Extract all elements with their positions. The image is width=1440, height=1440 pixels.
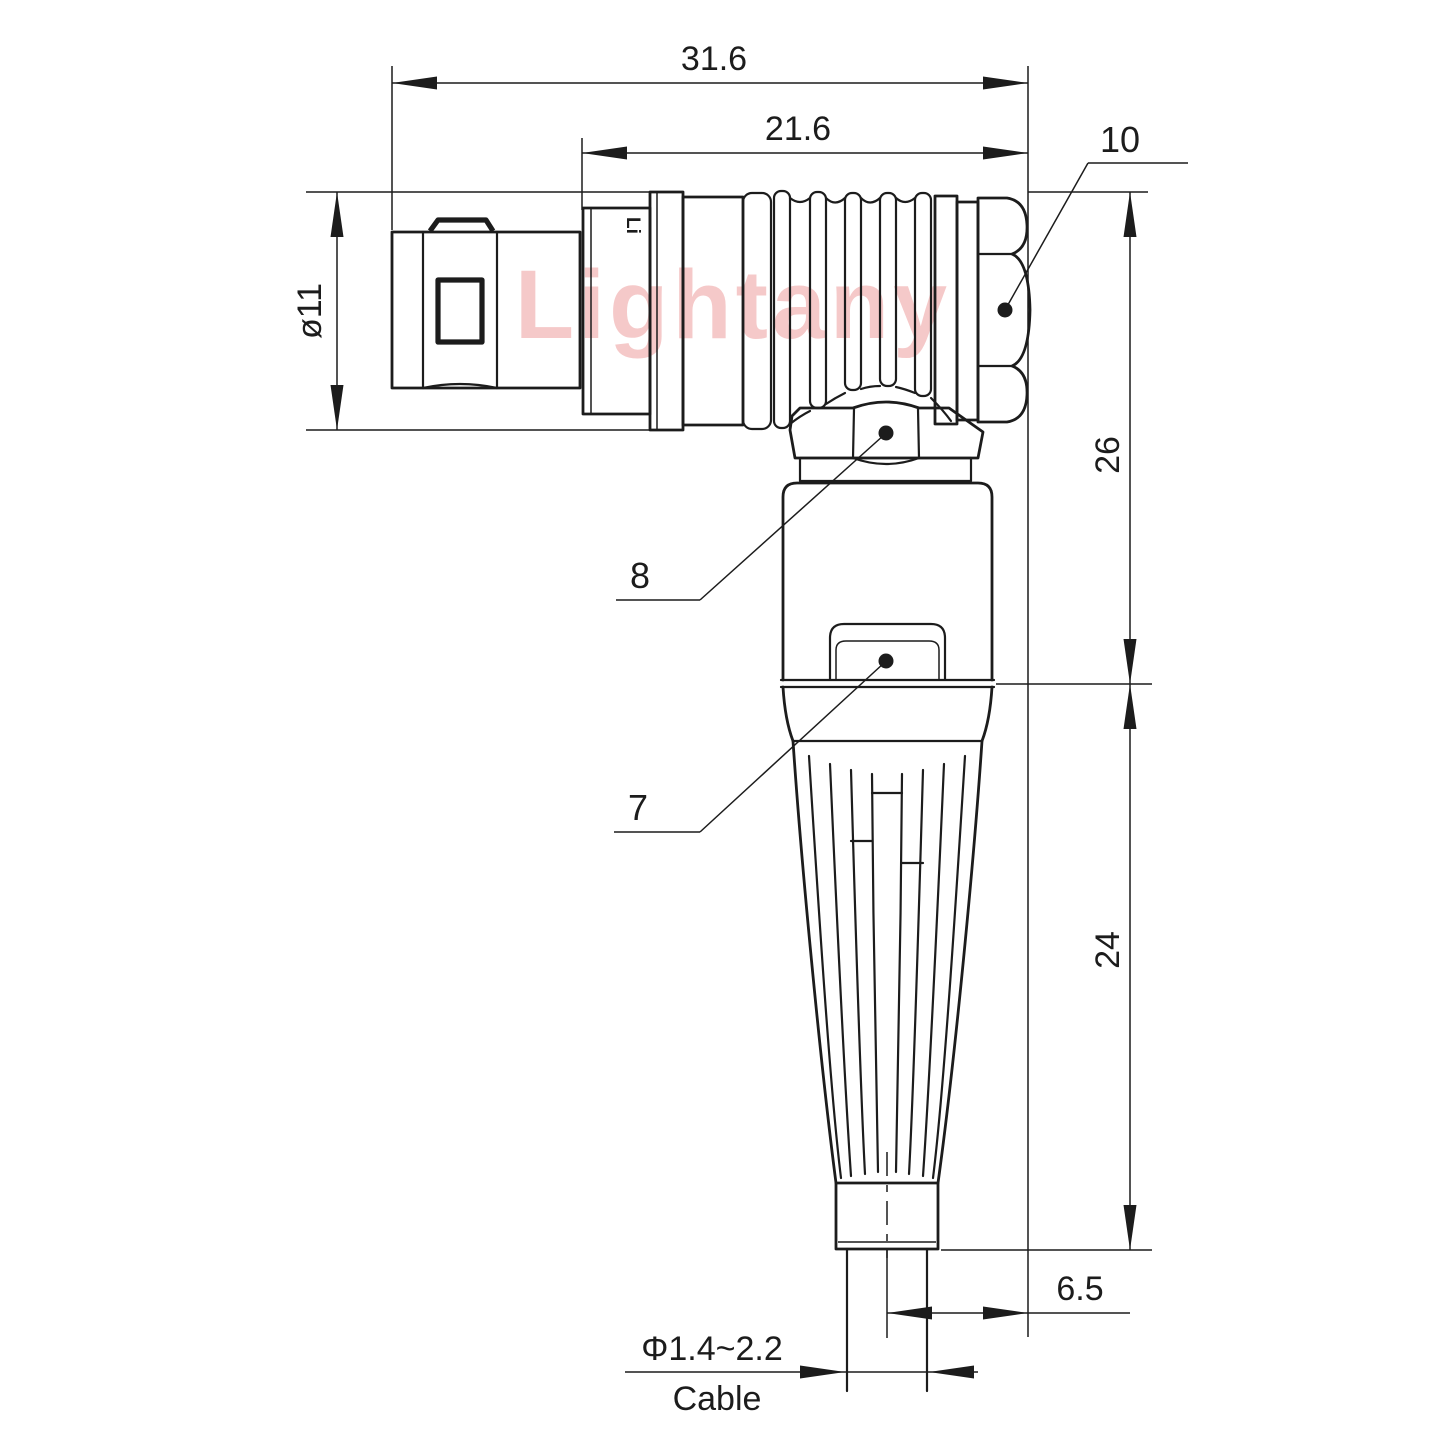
strain-relief xyxy=(783,687,992,1183)
connector-drawing-svg: Lightany Li xyxy=(0,0,1440,1440)
dim-cable-offset-label: 6.5 xyxy=(1056,1270,1103,1308)
arrowhead-down xyxy=(1124,639,1137,684)
connector-brand-mark: Li xyxy=(622,217,643,234)
callout-10-label: 10 xyxy=(1100,119,1140,160)
relief-flute xyxy=(909,770,923,1174)
rear-collar xyxy=(957,202,978,420)
elbow-hex-edge xyxy=(853,409,854,458)
relief-flute xyxy=(830,764,851,1176)
arrowhead-left xyxy=(392,77,437,90)
leader-dot xyxy=(998,303,1013,318)
leader-line xyxy=(1005,163,1088,310)
leader-dot xyxy=(879,426,894,441)
boot-core-top-arc xyxy=(861,198,880,203)
taper-side xyxy=(982,687,992,741)
coupling-body xyxy=(783,483,992,680)
boot-core-bottom-arc xyxy=(861,386,880,389)
arrowhead-left xyxy=(582,147,627,160)
taper-side xyxy=(783,687,793,741)
callout-7-label: 7 xyxy=(628,787,648,828)
dim-cable-offset: 6.5 xyxy=(887,1249,1130,1338)
boot-core-bottom-arc xyxy=(826,393,845,404)
dim-cable-diameter-label: Φ1.4~2.2 xyxy=(641,1330,783,1368)
dim-rear-length-label: 21.6 xyxy=(765,110,831,148)
relief-flute xyxy=(872,774,878,1172)
boot-core-top-arc xyxy=(826,198,845,203)
dim-height-lower-label: 24 xyxy=(1089,931,1127,969)
leader-dot xyxy=(879,654,894,669)
callout-8: 8 xyxy=(616,426,894,601)
cable-label: Cable xyxy=(673,1380,762,1418)
boot-core-bottom-arc xyxy=(896,387,915,393)
relief-flute xyxy=(933,756,965,1178)
relief-flute xyxy=(923,764,944,1176)
relief-flute xyxy=(851,770,865,1174)
leader-line xyxy=(700,435,884,600)
arrowhead-up xyxy=(1124,684,1137,729)
dim-barrel-diameter-label: ø11 xyxy=(291,283,329,339)
boot-core-top-arc xyxy=(896,198,915,202)
arrowhead-down xyxy=(331,385,344,430)
arrowhead-right xyxy=(800,1366,845,1379)
contact-window xyxy=(438,280,482,342)
relief-outer-edge xyxy=(793,741,836,1183)
arrowhead-down xyxy=(1124,1205,1137,1250)
elbow-section xyxy=(790,402,983,481)
relief-flute xyxy=(809,756,841,1178)
leader-line xyxy=(700,663,884,832)
relief-outer-edge xyxy=(938,741,982,1183)
elbow-hex-edge xyxy=(918,409,919,458)
technical-drawing-page: Lightany Li xyxy=(0,0,1440,1440)
arrowhead-right xyxy=(983,77,1028,90)
arrowhead-left xyxy=(887,1307,932,1320)
dim-cable-diameter: Φ1.4~2.2 Cable xyxy=(625,1330,978,1418)
arrowhead-up xyxy=(331,192,344,237)
arrowhead-right xyxy=(983,1307,1028,1320)
dim-overall-length: 31.6 xyxy=(392,40,1028,1337)
body-latch-clip xyxy=(830,624,945,679)
dim-height-upper-label: 26 xyxy=(1089,436,1127,474)
arrowhead-left xyxy=(929,1366,974,1379)
arrowhead-up xyxy=(1124,192,1137,237)
dim-overall-length-label: 31.6 xyxy=(681,40,747,78)
relief-flute xyxy=(896,774,902,1172)
latch-bump xyxy=(430,220,493,231)
callout-8-label: 8 xyxy=(630,555,650,596)
dim-heights: 26 24 xyxy=(941,192,1152,1250)
elbow-collar xyxy=(800,458,971,481)
arrowhead-right xyxy=(983,147,1028,160)
boot-core-top-arc xyxy=(790,198,810,202)
